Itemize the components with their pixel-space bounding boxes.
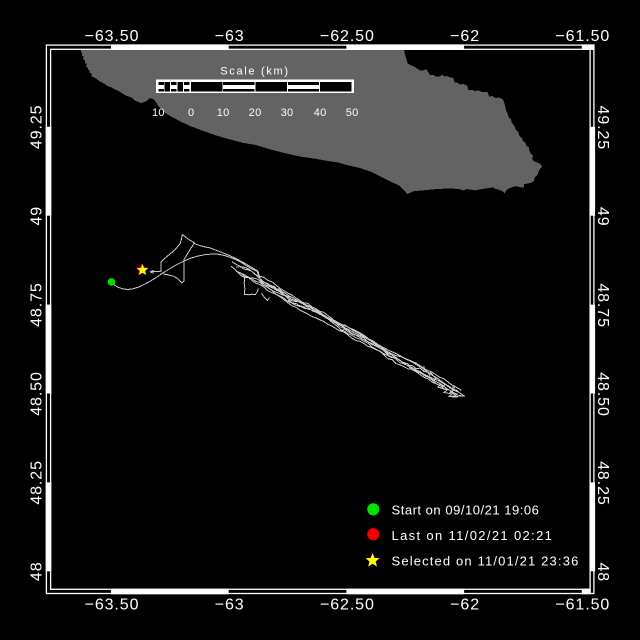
svg-text:30: 30 bbox=[281, 107, 294, 119]
svg-text:48.50: 48.50 bbox=[594, 372, 611, 417]
svg-text:49.25: 49.25 bbox=[28, 105, 45, 150]
svg-text:Scale (km): Scale (km) bbox=[220, 66, 290, 78]
svg-text:Start on 09/10/21 19:06: Start on 09/10/21 19:06 bbox=[392, 502, 540, 517]
svg-text:20: 20 bbox=[249, 107, 262, 119]
svg-text:−63.50: −63.50 bbox=[85, 597, 140, 614]
svg-text:10: 10 bbox=[217, 107, 230, 119]
svg-text:−62.50: −62.50 bbox=[320, 28, 375, 45]
svg-text:−62.50: −62.50 bbox=[320, 597, 375, 614]
svg-text:−63.50: −63.50 bbox=[85, 28, 140, 45]
svg-text:−62: −62 bbox=[450, 597, 480, 614]
svg-text:−63: −63 bbox=[215, 28, 245, 45]
svg-text:−61.50: −61.50 bbox=[555, 597, 610, 614]
svg-text:Selected on 11/01/21 23:36: Selected on 11/01/21 23:36 bbox=[392, 554, 580, 569]
svg-text:48: 48 bbox=[28, 561, 45, 581]
svg-text:48: 48 bbox=[594, 562, 611, 582]
svg-text:Last on 11/02/21 02:21: Last on 11/02/21 02:21 bbox=[392, 528, 554, 543]
svg-text:48.25: 48.25 bbox=[594, 461, 611, 506]
svg-text:48.50: 48.50 bbox=[28, 371, 45, 416]
svg-text:48.25: 48.25 bbox=[28, 460, 45, 505]
svg-text:10: 10 bbox=[152, 107, 165, 119]
svg-text:−62: −62 bbox=[450, 28, 480, 45]
svg-text:0: 0 bbox=[188, 107, 194, 119]
svg-text:49: 49 bbox=[28, 206, 45, 226]
svg-text:50: 50 bbox=[346, 107, 359, 119]
svg-text:49.25: 49.25 bbox=[594, 106, 611, 151]
svg-text:−61.50: −61.50 bbox=[555, 28, 610, 45]
svg-text:−63: −63 bbox=[215, 597, 245, 614]
svg-text:48.75: 48.75 bbox=[594, 283, 611, 328]
svg-text:48.75: 48.75 bbox=[28, 282, 45, 327]
svg-text:49: 49 bbox=[594, 207, 611, 227]
svg-text:40: 40 bbox=[314, 107, 327, 119]
